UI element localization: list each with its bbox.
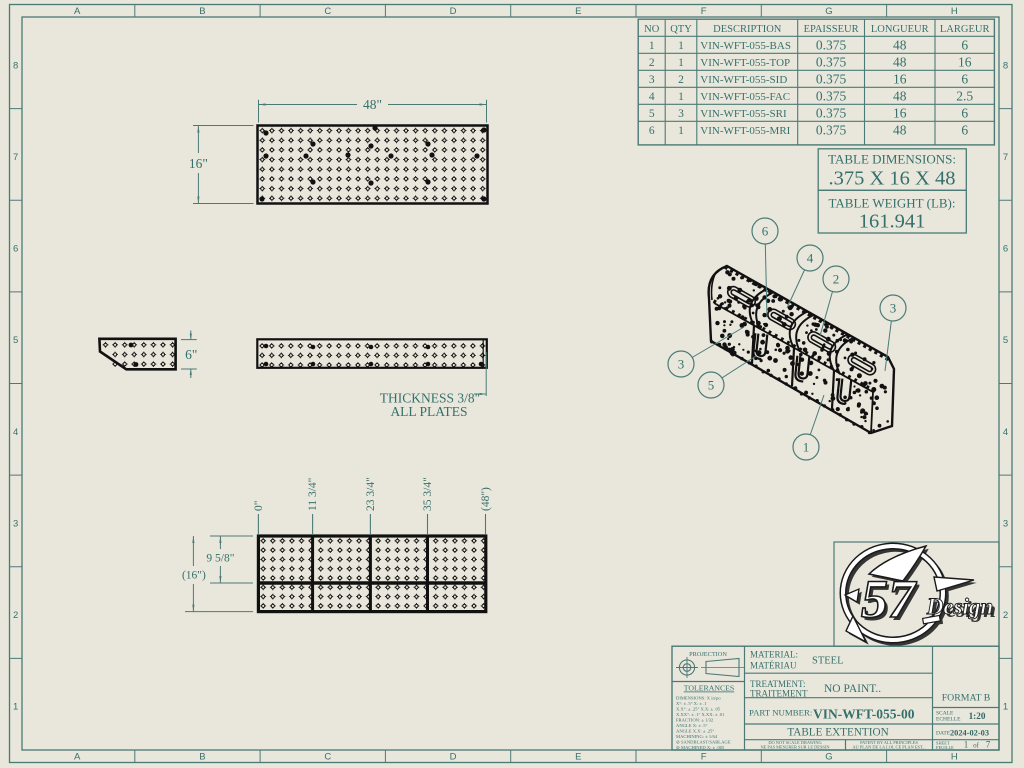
- svg-text:6": 6": [185, 347, 197, 362]
- svg-text:6: 6: [961, 122, 968, 137]
- svg-text:2: 2: [1003, 610, 1008, 621]
- svg-text:DIMENSIONS: X in/po: DIMENSIONS: X in/po: [676, 696, 721, 701]
- svg-text:2024-02-03: 2024-02-03: [950, 729, 989, 738]
- svg-text:3: 3: [13, 518, 18, 529]
- svg-text:VIN-WFT-055-FAC: VIN-WFT-055-FAC: [700, 91, 790, 103]
- svg-text:PART NUMBER:: PART NUMBER:: [749, 708, 812, 718]
- svg-text:1: 1: [803, 440, 810, 455]
- svg-text:C: C: [324, 6, 331, 17]
- svg-text:NO PAINT..: NO PAINT..: [824, 683, 881, 695]
- svg-text:6: 6: [649, 125, 655, 137]
- svg-text:8: 8: [1003, 60, 1008, 71]
- svg-text:5: 5: [1003, 335, 1008, 346]
- svg-text:H: H: [951, 6, 958, 17]
- svg-text:7: 7: [986, 740, 991, 750]
- svg-text:PROJECTION: PROJECTION: [689, 651, 727, 658]
- svg-text:2.5: 2.5: [956, 89, 973, 104]
- svg-text:7: 7: [13, 152, 18, 163]
- svg-text:FORMAT B: FORMAT B: [942, 693, 991, 704]
- svg-text:5: 5: [649, 108, 655, 120]
- svg-text:F: F: [701, 752, 707, 763]
- svg-text:48: 48: [893, 55, 907, 70]
- svg-text:G: G: [825, 6, 832, 17]
- svg-text:⊘ MACHINED X: ± .005: ⊘ MACHINED X: ± .005: [676, 745, 725, 750]
- svg-text:6: 6: [961, 72, 968, 87]
- svg-text:11 3/4": 11 3/4": [307, 478, 319, 511]
- svg-text:35 3/4": 35 3/4": [422, 477, 434, 511]
- svg-text:0.375: 0.375: [816, 38, 847, 53]
- svg-text:ANGLE X.X: ± .25°: ANGLE X.X: ± .25°: [676, 729, 714, 734]
- svg-text:0.375: 0.375: [816, 55, 847, 70]
- svg-text:TABLE EXTENTION: TABLE EXTENTION: [787, 727, 888, 739]
- svg-text:STEEL: STEEL: [812, 656, 844, 667]
- svg-text:1: 1: [649, 40, 655, 52]
- svg-text:6: 6: [961, 38, 968, 53]
- svg-text:B: B: [199, 6, 205, 17]
- svg-text:E: E: [575, 752, 581, 763]
- svg-text:4: 4: [1003, 427, 1008, 438]
- svg-text:NE PAS MESURER SUR LE DESSIN: NE PAS MESURER SUR LE DESSIN: [760, 745, 830, 750]
- svg-text:9 5/8": 9 5/8": [206, 553, 234, 565]
- svg-text:⊘ SANDBLAST/SABLAGE: ⊘ SANDBLAST/SABLAGE: [676, 740, 731, 745]
- svg-text:ALL PLATES: ALL PLATES: [390, 404, 467, 419]
- svg-text:0": 0": [253, 501, 265, 511]
- svg-text:DESCRIPTION: DESCRIPTION: [713, 24, 782, 35]
- svg-text:4: 4: [13, 427, 18, 438]
- svg-text:(48"): (48"): [480, 487, 492, 511]
- svg-text:E: E: [575, 6, 581, 17]
- svg-text:EPAISSEUR: EPAISSEUR: [804, 24, 859, 35]
- svg-text:VIN-WFT-055-SID: VIN-WFT-055-SID: [700, 74, 787, 86]
- svg-text:0.375: 0.375: [816, 72, 847, 87]
- svg-text:Design: Design: [926, 594, 993, 619]
- svg-text:VIN-WFT-055-00: VIN-WFT-055-00: [813, 707, 915, 722]
- svg-text:6: 6: [13, 244, 18, 255]
- svg-text:NO: NO: [644, 24, 660, 35]
- svg-text:2: 2: [678, 74, 684, 86]
- svg-text:6: 6: [961, 106, 968, 121]
- svg-text:23 3/4": 23 3/4": [365, 477, 377, 511]
- svg-text:1: 1: [678, 125, 684, 137]
- svg-text:16: 16: [893, 106, 907, 121]
- svg-text:D: D: [450, 6, 457, 17]
- svg-text:6: 6: [762, 224, 769, 239]
- svg-text:G: G: [825, 752, 832, 763]
- svg-text:VIN-WFT-055-BAS: VIN-WFT-055-BAS: [700, 40, 791, 52]
- svg-text:4: 4: [649, 91, 655, 103]
- svg-text:48: 48: [893, 89, 907, 104]
- svg-text:1: 1: [964, 740, 969, 750]
- svg-text:5: 5: [708, 378, 715, 393]
- svg-text:of: of: [973, 742, 980, 750]
- svg-text:(16"): (16"): [182, 570, 206, 582]
- svg-text:MACHINING: ± 1/64: MACHINING: ± 1/64: [676, 734, 718, 739]
- svg-text:1: 1: [1003, 702, 1008, 713]
- svg-text:X°: ± .5° X: ± .1: X°: ± .5° X: ± .1: [676, 701, 707, 706]
- svg-text:57: 57: [861, 569, 917, 629]
- svg-text:QTY: QTY: [670, 24, 692, 35]
- svg-text:H: H: [951, 752, 958, 763]
- svg-text:TREATMENT:: TREATMENT:: [750, 679, 806, 689]
- svg-text:DATE: DATE: [936, 731, 951, 737]
- svg-text:48": 48": [363, 97, 382, 112]
- svg-text:D: D: [450, 752, 457, 763]
- svg-text:MATERIAL:: MATERIAL:: [750, 650, 798, 660]
- svg-text:4: 4: [807, 251, 814, 266]
- svg-text:48: 48: [893, 122, 907, 137]
- svg-text:ANGLE X: ± .5°: ANGLE X: ± .5°: [676, 723, 708, 728]
- svg-text:2: 2: [649, 57, 655, 69]
- svg-text:0.375: 0.375: [816, 89, 847, 104]
- svg-text:3: 3: [678, 357, 685, 372]
- svg-text:1:20: 1:20: [969, 711, 986, 721]
- svg-text:0.375: 0.375: [816, 106, 847, 121]
- svg-text:A: A: [74, 6, 81, 17]
- svg-text:ECHELLE: ECHELLE: [936, 717, 961, 723]
- svg-text:3: 3: [890, 301, 897, 316]
- svg-text:.375 X 16 X 48: .375 X 16 X 48: [829, 168, 956, 190]
- svg-text:LONGUEUR: LONGUEUR: [871, 24, 929, 35]
- svg-text:TRAITEMENT: TRAITEMENT: [750, 689, 808, 699]
- svg-text:MATÉRIAU: MATÉRIAU: [750, 661, 797, 671]
- svg-text:7: 7: [1003, 152, 1008, 163]
- svg-text:16": 16": [189, 156, 208, 171]
- svg-text:5: 5: [13, 335, 18, 346]
- svg-text:X.XX°: ± .1° X.XX: ± .01: X.XX°: ± .1° X.XX: ± .01: [676, 712, 725, 717]
- svg-text:FEUILLE: FEUILLE: [936, 745, 954, 750]
- svg-text:FRACTION: ± 1/32: FRACTION: ± 1/32: [676, 718, 714, 723]
- svg-text:1: 1: [13, 702, 18, 713]
- svg-text:C: C: [324, 752, 331, 763]
- svg-text:3: 3: [678, 108, 684, 120]
- svg-text:VIN-WFT-055-MRI: VIN-WFT-055-MRI: [700, 125, 790, 137]
- svg-text:6: 6: [1003, 244, 1008, 255]
- svg-text:0.375: 0.375: [816, 122, 847, 137]
- svg-text:3: 3: [1003, 518, 1008, 529]
- svg-text:VIN-WFT-055-SRI: VIN-WFT-055-SRI: [700, 108, 787, 120]
- svg-text:8: 8: [13, 60, 18, 71]
- svg-text:2: 2: [833, 272, 840, 287]
- svg-text:3: 3: [649, 74, 655, 86]
- svg-text:161.941: 161.941: [859, 211, 926, 233]
- svg-text:B: B: [199, 752, 205, 763]
- svg-text:TABLE DIMENSIONS:: TABLE DIMENSIONS:: [828, 152, 956, 167]
- svg-text:1: 1: [678, 91, 684, 103]
- svg-text:F: F: [701, 6, 707, 17]
- svg-text:VIN-WFT-055-TOP: VIN-WFT-055-TOP: [700, 57, 790, 69]
- svg-text:16: 16: [893, 72, 907, 87]
- svg-text:TABLE WEIGHT (LB):: TABLE WEIGHT (LB):: [828, 196, 955, 211]
- svg-text:1: 1: [678, 57, 684, 69]
- svg-text:A: A: [74, 752, 81, 763]
- svg-text:1: 1: [678, 40, 684, 52]
- svg-text:2: 2: [13, 610, 18, 621]
- svg-text:LARGEUR: LARGEUR: [940, 24, 990, 35]
- svg-text:X.X°: ± .25° X.X: ± .05: X.X°: ± .25° X.X: ± .05: [676, 707, 721, 712]
- svg-text:TOLERANCES: TOLERANCES: [684, 684, 735, 693]
- svg-text:48: 48: [893, 38, 907, 53]
- svg-text:16: 16: [958, 55, 972, 70]
